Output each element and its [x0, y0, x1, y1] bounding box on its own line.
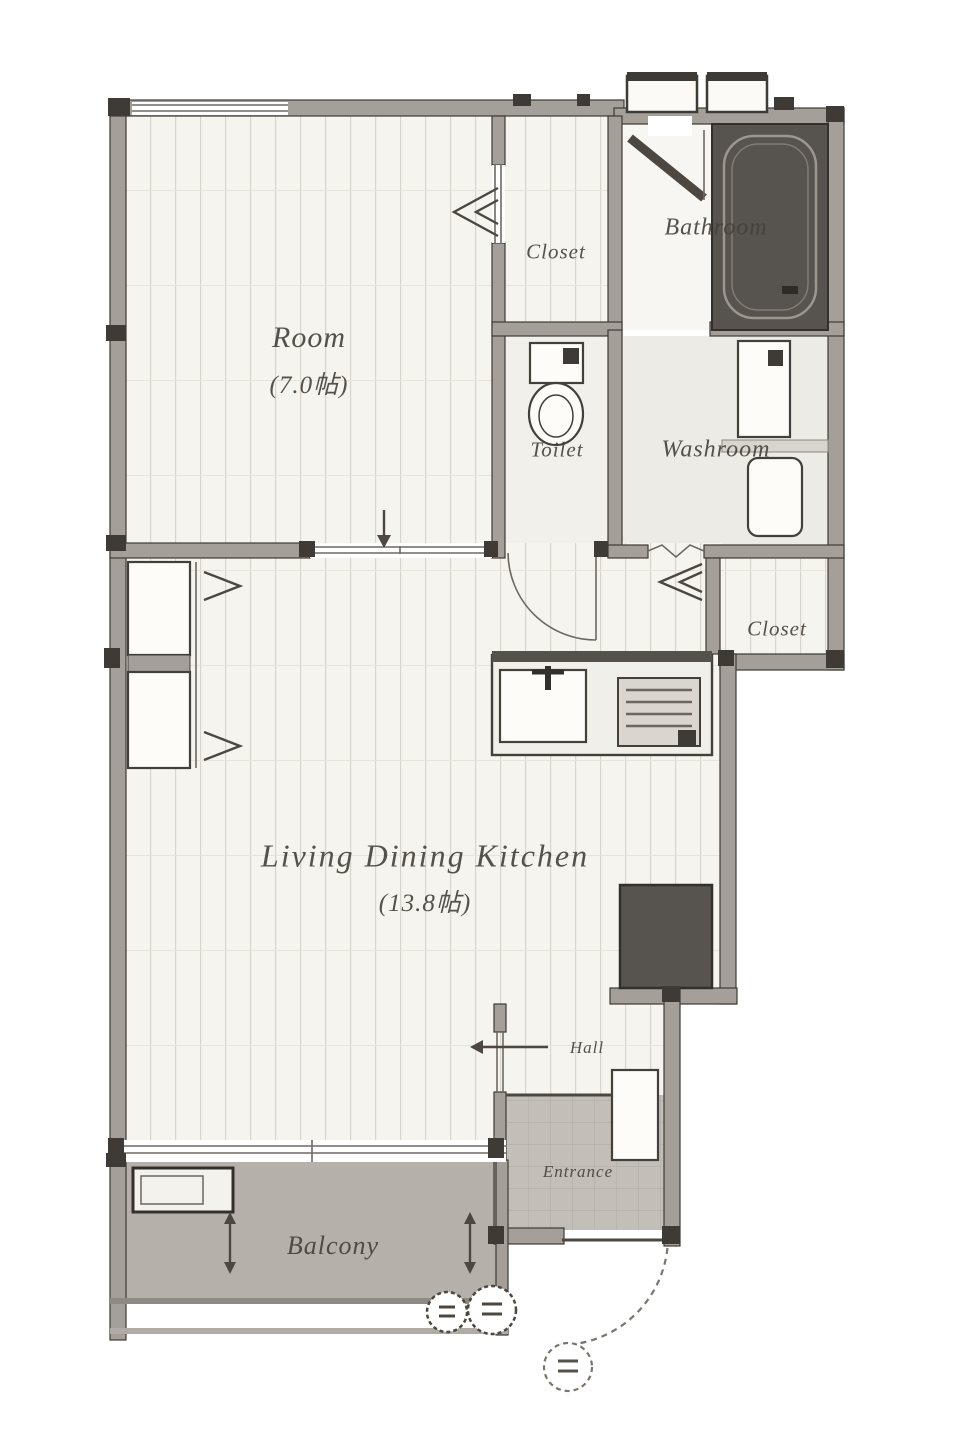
toilet-label: Toilet: [530, 438, 583, 463]
room-label: Room: [272, 321, 346, 355]
washroom-label: Washroom: [662, 437, 771, 464]
room-window: [132, 102, 288, 115]
closet-top-opening: [492, 165, 505, 243]
shoe-cabinet: [612, 1070, 658, 1160]
floorplan-page: Room (7.0帖) Closet Bathroom Toilet Washr…: [0, 0, 960, 1440]
washing-machine-pan: [738, 341, 790, 437]
refrigerator: [620, 885, 712, 988]
pipe-shaft-boxes: [627, 72, 767, 112]
ldk-size-label: (13.8帖): [379, 883, 471, 919]
washbasin: [748, 458, 802, 536]
toilet-fixture: [529, 343, 583, 445]
stove: [618, 678, 700, 747]
balcony-label: Balcony: [287, 1231, 379, 1261]
bathroom-label: Bathroom: [664, 215, 767, 242]
balcony-window: [124, 1140, 506, 1162]
entrance-label: Entrance: [543, 1162, 613, 1182]
hall-label: Hall: [570, 1038, 604, 1058]
west-storage-units: [128, 562, 196, 768]
closet-mid-label: Closet: [747, 617, 807, 642]
closet-top-label: Closet: [526, 240, 586, 265]
room-size-label: (7.0帖): [270, 365, 349, 401]
ldk-label: Living Dining Kitchen: [261, 838, 589, 875]
kitchen-sink: [500, 666, 586, 742]
closet-top-floor: [505, 116, 608, 322]
meter-circles: [427, 1286, 592, 1391]
floorplan-drawing: [0, 0, 960, 1440]
room-ldk-sliding-door: [310, 543, 492, 558]
kitchen-counter: [492, 651, 712, 755]
entrance-door-arc: [560, 1237, 668, 1345]
ac-outdoor-unit: [133, 1168, 233, 1212]
